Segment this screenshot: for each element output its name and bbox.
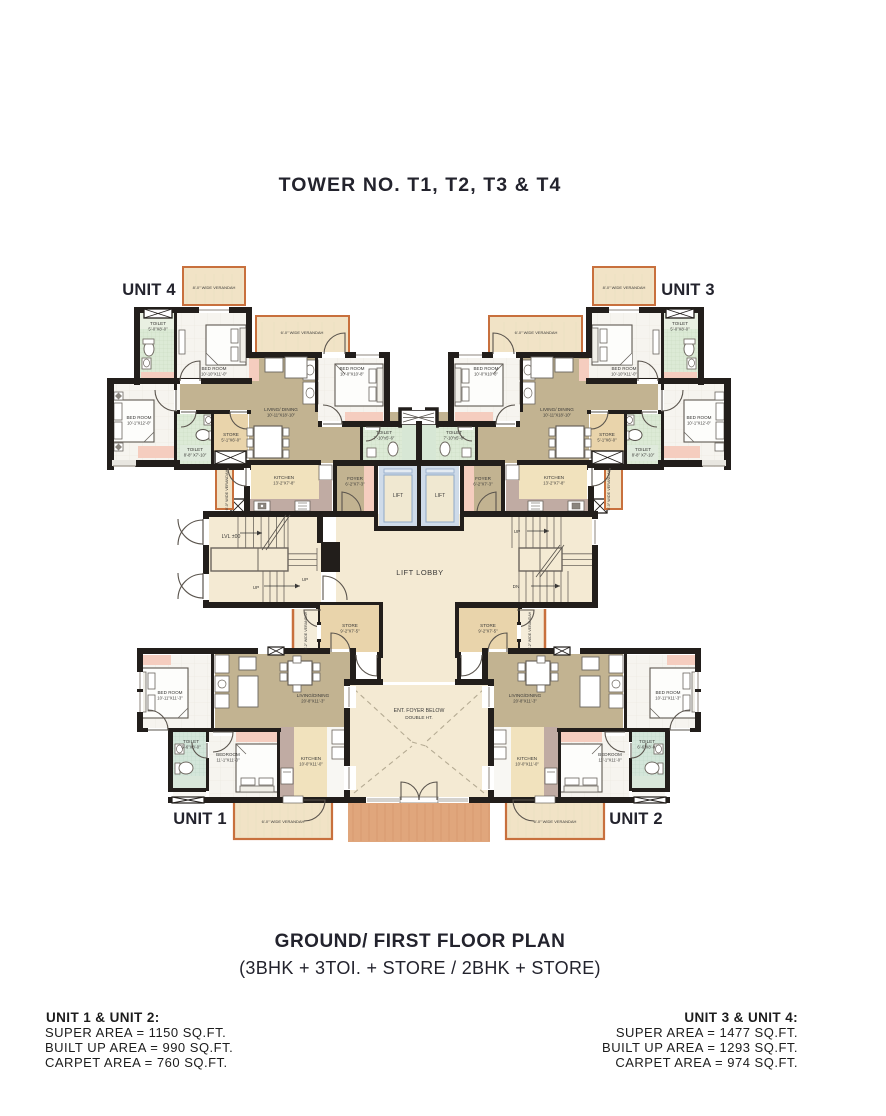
svg-text:UP: UP	[302, 577, 308, 582]
svg-text:UNIT 1: UNIT 1	[173, 810, 226, 828]
svg-text:LIVING/DINING: LIVING/DINING	[297, 693, 330, 698]
svg-text:8′-8″ X7′-10″: 8′-8″ X7′-10″	[184, 452, 207, 457]
svg-text:UP: UP	[253, 585, 259, 590]
svg-text:8′-0″ WIDE VERANDAH: 8′-0″ WIDE VERANDAH	[193, 285, 236, 290]
svg-text:GROUND/ FIRST FLOOR PLAN: GROUND/ FIRST FLOOR PLAN	[275, 931, 566, 952]
svg-text:11′-1″X11′-0″: 11′-1″X11′-0″	[216, 757, 240, 762]
svg-text:DOUBLE HT.: DOUBLE HT.	[405, 715, 432, 720]
svg-text:DN: DN	[513, 584, 520, 589]
svg-text:TOILET: TOILET	[635, 447, 651, 452]
svg-text:STORE: STORE	[599, 432, 615, 437]
svg-text:TOILET: TOILET	[446, 430, 462, 435]
svg-text:UNIT 1 & UNIT 2:: UNIT 1 & UNIT 2:	[46, 1010, 160, 1025]
svg-text:UNIT 2: UNIT 2	[609, 810, 662, 828]
svg-text:ENT. FOYER BELOW: ENT. FOYER BELOW	[394, 708, 445, 714]
svg-text:6′-2″X7′-3″: 6′-2″X7′-3″	[345, 481, 365, 486]
svg-text:7′-10″x5′-6″: 7′-10″x5′-6″	[444, 435, 465, 440]
svg-text:TOILET: TOILET	[639, 739, 655, 744]
svg-text:FOYER: FOYER	[347, 476, 364, 481]
svg-text:BUILT UP AREA = 1293 SQ.FT.: BUILT UP AREA = 1293 SQ.FT.	[602, 1040, 798, 1055]
svg-text:LIFT LOBBY: LIFT LOBBY	[396, 568, 443, 577]
svg-text:LIVING/DINING: LIVING/DINING	[509, 693, 542, 698]
svg-text:TOILET: TOILET	[183, 739, 199, 744]
svg-text:BED ROOM: BED ROOM	[655, 690, 680, 695]
svg-text:BED ROOM: BED ROOM	[201, 366, 226, 371]
svg-text:6′-0″ WIDE VERANDAH: 6′-0″ WIDE VERANDAH	[225, 469, 229, 510]
svg-text:10′-10″X11′-0″: 10′-10″X11′-0″	[201, 371, 227, 376]
svg-text:FOYER: FOYER	[475, 476, 492, 481]
svg-text:TOILET: TOILET	[150, 321, 166, 326]
svg-text:6′-0″ WIDE VERANDAH: 6′-0″ WIDE VERANDAH	[281, 330, 324, 335]
svg-text:UNIT 4: UNIT 4	[122, 281, 176, 299]
svg-text:BUILT UP AREA = 990 SQ.FT.: BUILT UP AREA = 990 SQ.FT.	[45, 1040, 233, 1055]
svg-text:TOILET: TOILET	[672, 321, 688, 326]
svg-text:10′-0″X11′-0″: 10′-0″X11′-0″	[299, 761, 323, 766]
svg-text:8′-0″ WIDE VERANDAH: 8′-0″ WIDE VERANDAH	[603, 285, 646, 290]
svg-text:STORE: STORE	[342, 623, 358, 628]
svg-text:10′-11″X18′-10″: 10′-11″X18′-10″	[543, 412, 572, 417]
svg-text:UP: UP	[514, 529, 520, 534]
svg-text:5′-1″X6′-0″: 5′-1″X6′-0″	[597, 437, 617, 442]
svg-text:6′-2″X7′-3″: 6′-2″X7′-3″	[473, 481, 493, 486]
svg-text:BED ROOM: BED ROOM	[473, 366, 498, 371]
svg-text:UNIT 3 & UNIT 4:: UNIT 3 & UNIT 4:	[684, 1010, 798, 1025]
svg-text:TOILET: TOILET	[187, 447, 203, 452]
svg-text:BED ROOM: BED ROOM	[686, 415, 711, 420]
svg-text:10′-0″X10′-8″: 10′-0″X10′-8″	[474, 371, 498, 376]
svg-text:BED ROOM: BED ROOM	[126, 415, 151, 420]
svg-text:TOWER NO. T1, T2, T3 & T4: TOWER NO. T1, T2, T3 & T4	[279, 174, 562, 196]
svg-text:10′-0″X10′-8″: 10′-0″X10′-8″	[340, 371, 364, 376]
svg-text:6′-6″X8′-0″: 6′-6″X8′-0″	[637, 744, 657, 749]
svg-text:BED ROOM: BED ROOM	[611, 366, 636, 371]
svg-text:LIVING/ DINING: LIVING/ DINING	[264, 407, 298, 412]
svg-text:KITCHEN: KITCHEN	[544, 475, 564, 480]
svg-text:8′-8″ X7′-10″: 8′-8″ X7′-10″	[632, 452, 655, 457]
svg-text:KITCHEN: KITCHEN	[301, 756, 321, 761]
svg-text:(3BHK + 3TOI. + STORE / 2BHK +: (3BHK + 3TOI. + STORE / 2BHK + STORE)	[239, 958, 601, 978]
svg-text:11′-1″X11′-0″: 11′-1″X11′-0″	[598, 757, 622, 762]
svg-text:BEDROOM: BEDROOM	[598, 752, 622, 757]
svg-text:KITCHEN: KITCHEN	[274, 475, 294, 480]
svg-text:7′-10″x5′-6″: 7′-10″x5′-6″	[374, 435, 395, 440]
svg-text:20′-8″X11′-3″: 20′-8″X11′-3″	[513, 698, 537, 703]
svg-text:SUPER AREA = 1477 SQ.FT.: SUPER AREA = 1477 SQ.FT.	[616, 1025, 798, 1040]
svg-text:BEDROOM: BEDROOM	[216, 752, 240, 757]
svg-text:TOILET: TOILET	[376, 430, 392, 435]
svg-text:STORE: STORE	[223, 432, 239, 437]
svg-text:9′-2″X7′-5″: 9′-2″X7′-5″	[340, 628, 360, 633]
svg-text:10′-11″X18′-10″: 10′-11″X18′-10″	[267, 412, 296, 417]
svg-text:6′-6″X8′-0″: 6′-6″X8′-0″	[181, 744, 201, 749]
svg-text:LIFT: LIFT	[393, 493, 403, 499]
svg-text:LIVING/ DINING: LIVING/ DINING	[540, 407, 574, 412]
svg-text:10′-0″X11′-0″: 10′-0″X11′-0″	[515, 761, 539, 766]
svg-text:6′-0″ WIDE VERANDAH: 6′-0″ WIDE VERANDAH	[262, 819, 305, 824]
svg-text:5′-0″X8′-0″: 5′-0″X8′-0″	[148, 326, 168, 331]
svg-text:10′-1″X12′-0″: 10′-1″X12′-0″	[127, 420, 151, 425]
svg-text:10′-11″X11′-3″: 10′-11″X11′-3″	[157, 695, 183, 700]
svg-text:6′-0″ WIDE VERANDAH: 6′-0″ WIDE VERANDAH	[607, 469, 611, 510]
svg-text:13′-2″X7′-8″: 13′-2″X7′-8″	[273, 480, 295, 485]
svg-text:LVL ±00: LVL ±00	[222, 534, 241, 540]
svg-text:6′-0″ WIDE VERANDAH: 6′-0″ WIDE VERANDAH	[515, 330, 558, 335]
svg-text:10′-10″X11′-0″: 10′-10″X11′-0″	[611, 371, 637, 376]
svg-text:BED ROOM: BED ROOM	[339, 366, 364, 371]
svg-text:SUPER AREA = 1150 SQ.FT.: SUPER AREA = 1150 SQ.FT.	[45, 1025, 226, 1040]
svg-text:LIFT: LIFT	[435, 493, 445, 499]
svg-text:BED ROOM: BED ROOM	[157, 690, 182, 695]
svg-text:UNIT 3: UNIT 3	[661, 281, 714, 299]
svg-text:CARPET AREA = 974 SQ.FT.: CARPET AREA = 974 SQ.FT.	[615, 1055, 798, 1070]
svg-text:4′-2″ WIDE VERANDAH: 4′-2″ WIDE VERANDAH	[304, 611, 308, 650]
svg-text:5′-0″X8′-0″: 5′-0″X8′-0″	[670, 326, 690, 331]
svg-text:6′-0″ WIDE VERANDAH: 6′-0″ WIDE VERANDAH	[534, 819, 577, 824]
svg-text:KITCHEN: KITCHEN	[517, 756, 537, 761]
svg-text:10′-1″X12′-0″: 10′-1″X12′-0″	[687, 420, 711, 425]
svg-text:9′-2″X7′-5″: 9′-2″X7′-5″	[478, 628, 498, 633]
svg-text:10′-11″X11′-3″: 10′-11″X11′-3″	[655, 695, 681, 700]
svg-text:CARPET AREA = 760 SQ.FT.: CARPET AREA = 760 SQ.FT.	[45, 1055, 228, 1070]
svg-text:13′-2″X7′-8″: 13′-2″X7′-8″	[543, 480, 565, 485]
svg-text:4′-2″ WIDE VERANDAH: 4′-2″ WIDE VERANDAH	[528, 611, 532, 650]
svg-text:20′-8″X11′-3″: 20′-8″X11′-3″	[301, 698, 325, 703]
svg-text:STORE: STORE	[480, 623, 496, 628]
svg-text:5′-1″X6′-0″: 5′-1″X6′-0″	[221, 437, 241, 442]
